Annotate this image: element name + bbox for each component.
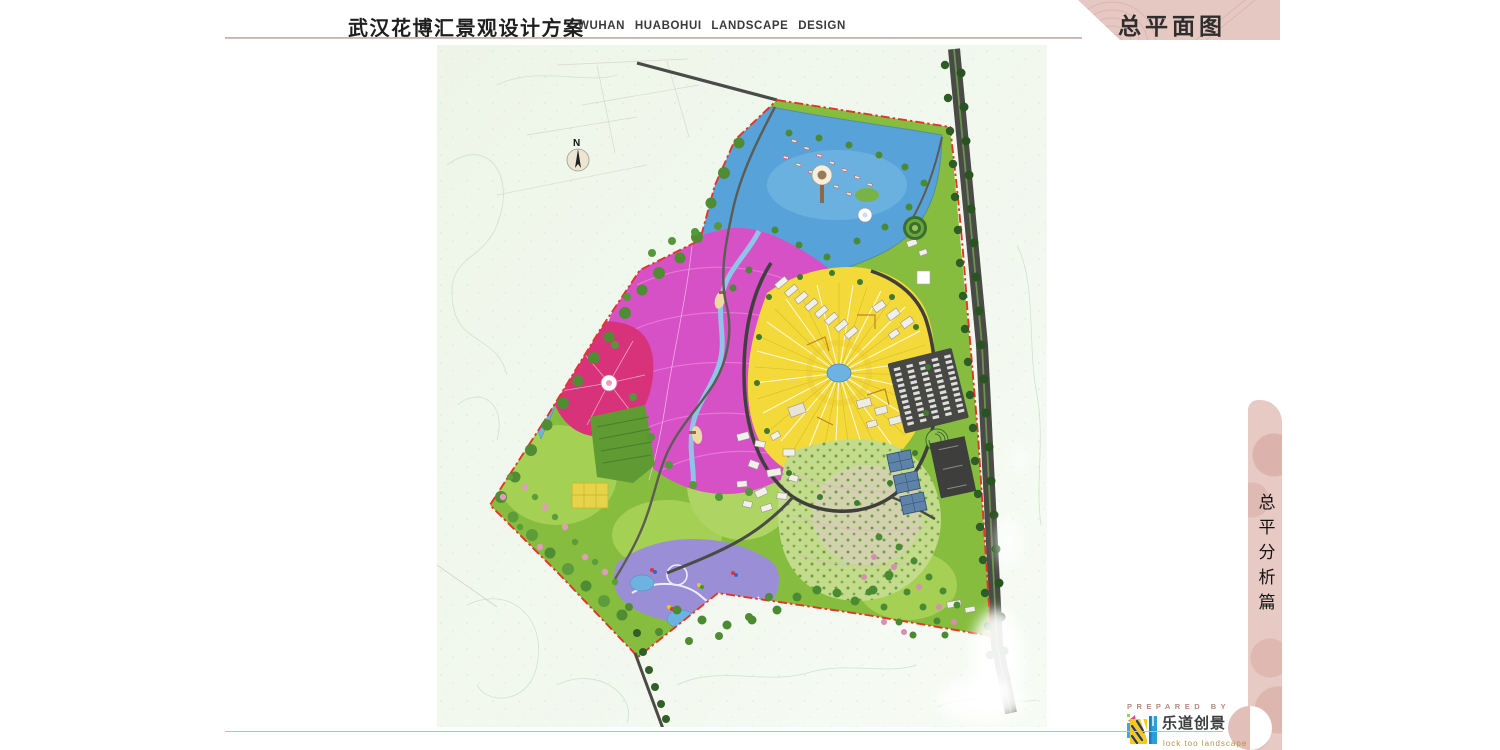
compass-north-label: N xyxy=(573,138,580,149)
zone-orchard xyxy=(778,439,941,601)
map-illustration: N xyxy=(437,45,1047,727)
header-divider xyxy=(225,37,1082,39)
master-plan-map: N xyxy=(437,45,1047,727)
prepared-by-label: PREPARED BY xyxy=(1127,702,1230,711)
chapter-tab: 总平分析篇 xyxy=(1248,400,1282,750)
company-tagline: lock too landscape xyxy=(1163,739,1247,748)
footer-divider xyxy=(225,731,1223,732)
company-logo-icon xyxy=(1127,714,1158,744)
chapter-tab-label: 总平分析篇 xyxy=(1253,493,1278,618)
section-banner: 总平面图 xyxy=(1078,0,1280,40)
banner-label: 总平面图 xyxy=(1118,7,1226,41)
page-subtitle: WUHAN HUABOHUI LANDSCAPE DESIGN xyxy=(578,20,846,32)
company-name: 乐道创景 xyxy=(1162,712,1226,733)
